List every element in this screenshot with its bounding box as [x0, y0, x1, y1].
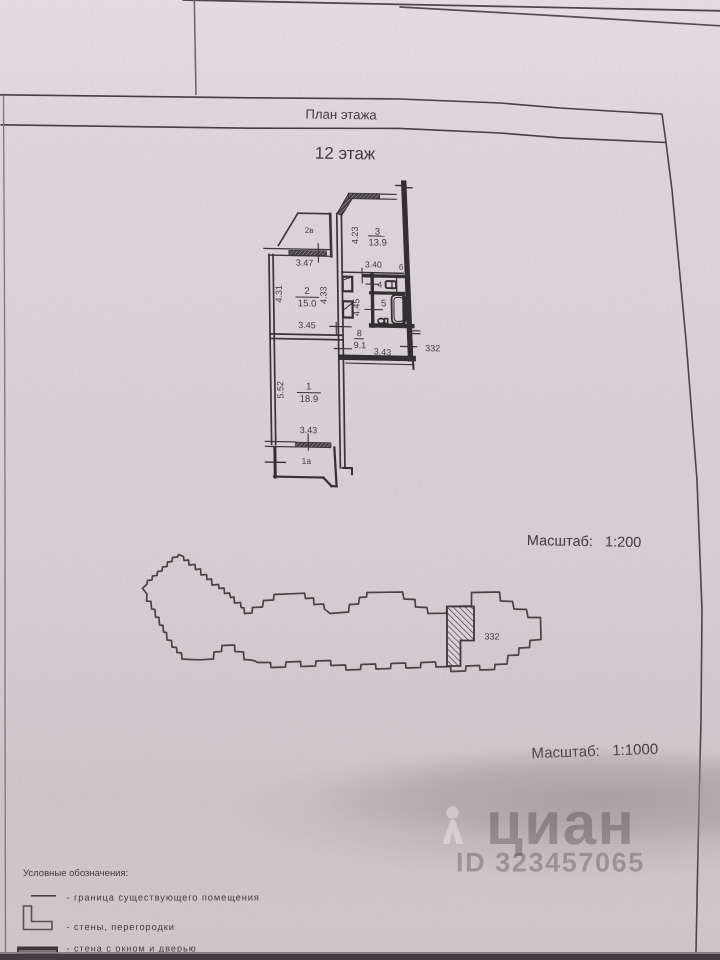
svg-text:4.33: 4.33 [318, 286, 328, 304]
svg-text:12 этаж: 12 этаж [315, 144, 376, 164]
svg-text:332: 332 [485, 632, 500, 642]
svg-text:4.45: 4.45 [351, 298, 361, 316]
svg-text:Масштаб: 1:200: Масштаб: 1:200 [527, 533, 642, 551]
svg-text:13.9: 13.9 [368, 237, 387, 248]
svg-text:План этажа: План этажа [305, 107, 377, 123]
svg-text:332: 332 [425, 343, 440, 353]
svg-text:3.45: 3.45 [298, 320, 316, 330]
svg-text:4.31: 4.31 [274, 285, 284, 303]
svg-text:4.23: 4.23 [350, 226, 360, 244]
svg-text:3.43: 3.43 [374, 346, 392, 357]
svg-text:3.40: 3.40 [365, 259, 382, 269]
svg-text:Условные обозначения:: Условные обозначения: [23, 868, 128, 879]
svg-text:9.1: 9.1 [354, 340, 367, 350]
svg-text:5.52: 5.52 [275, 381, 285, 399]
svg-text:18.9: 18.9 [300, 394, 319, 405]
svg-text:ID 323457065: ID 323457065 [456, 848, 645, 878]
svg-text:3.47: 3.47 [296, 258, 314, 268]
svg-text:5: 5 [381, 298, 386, 309]
svg-text:8: 8 [357, 328, 362, 338]
svg-text:2: 2 [304, 286, 309, 297]
svg-text:1: 1 [306, 381, 311, 392]
svg-text:- граница существующего помеще: - граница существующего помещения [67, 893, 260, 903]
svg-text:4: 4 [377, 280, 382, 290]
svg-text:б: б [399, 263, 404, 272]
svg-text:- стены, перегородки: - стены, перегородки [67, 922, 175, 932]
svg-text:1а: 1а [302, 456, 312, 466]
svg-text:15.0: 15.0 [298, 298, 317, 309]
svg-text:2в: 2в [305, 226, 314, 235]
